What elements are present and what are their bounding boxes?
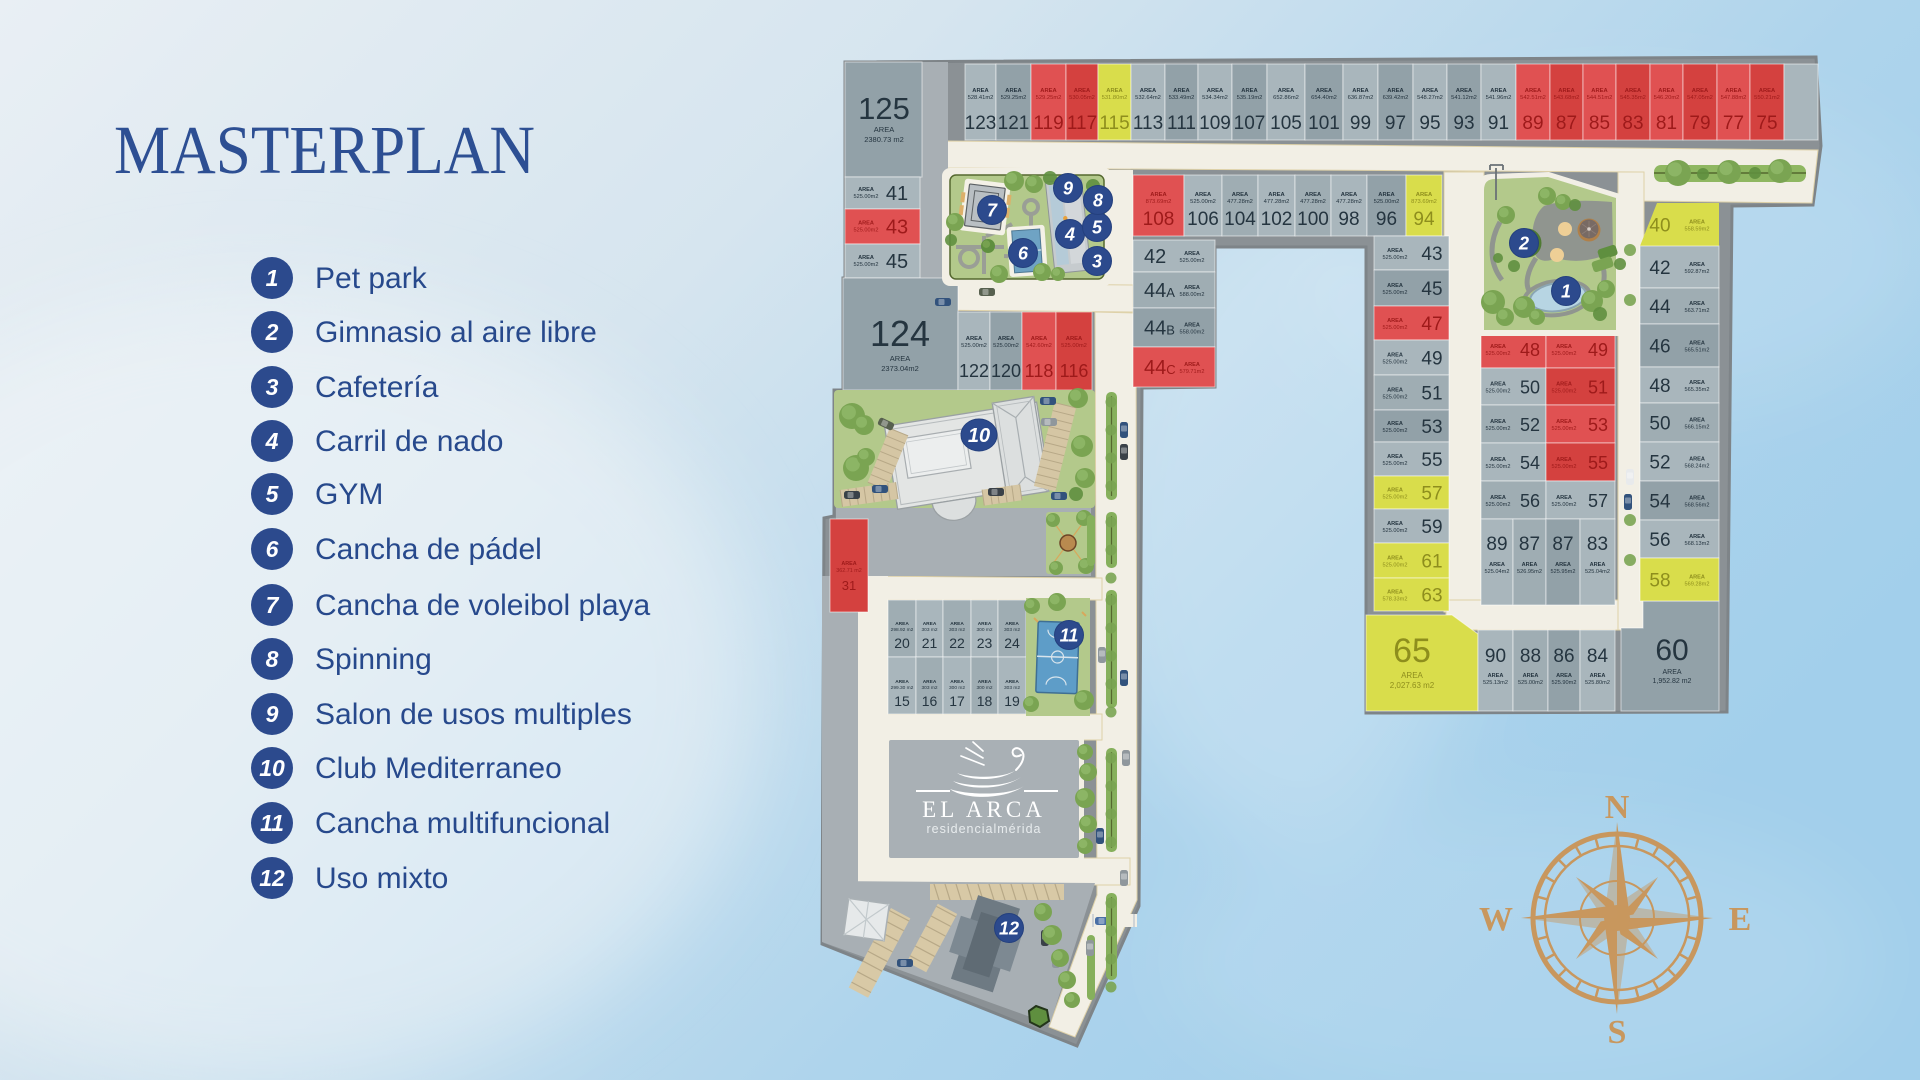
svg-text:300 m2: 300 m2: [949, 685, 965, 691]
svg-text:8: 8: [1093, 191, 1103, 211]
svg-text:AREA: AREA: [1689, 457, 1705, 463]
svg-text:89: 89: [1486, 534, 1507, 555]
svg-text:2: 2: [1518, 234, 1529, 254]
svg-text:AREA: AREA: [1456, 88, 1473, 94]
svg-text:298.92 m2: 298.92 m2: [891, 627, 914, 633]
svg-text:AREA: AREA: [1489, 562, 1505, 568]
svg-text:Cancha de pádel: Cancha de pádel: [315, 533, 542, 566]
svg-text:24: 24: [1004, 635, 1020, 651]
svg-text:AREA: AREA: [1241, 88, 1258, 94]
svg-text:117: 117: [1067, 113, 1097, 134]
svg-text:89: 89: [1522, 113, 1543, 134]
svg-text:AREA: AREA: [1278, 88, 1295, 94]
svg-text:525.00m2: 525.00m2: [1383, 360, 1408, 366]
svg-text:AREA: AREA: [923, 621, 937, 627]
svg-text:11: 11: [260, 810, 284, 836]
svg-text:10: 10: [259, 755, 285, 781]
svg-text:525.00m2: 525.00m2: [1383, 290, 1408, 296]
svg-text:116: 116: [1060, 361, 1089, 381]
svg-text:4: 4: [265, 428, 279, 454]
svg-text:542.51m2: 542.51m2: [1520, 95, 1546, 101]
svg-text:50: 50: [1520, 378, 1540, 398]
svg-text:543.68m2: 543.68m2: [1554, 95, 1580, 101]
svg-text:17: 17: [949, 693, 965, 709]
svg-text:81: 81: [1656, 113, 1677, 134]
svg-text:AREA: AREA: [1490, 457, 1506, 463]
svg-text:AREA: AREA: [1184, 323, 1200, 329]
svg-text:49: 49: [1588, 340, 1608, 360]
svg-text:AREA: AREA: [1387, 590, 1403, 596]
svg-text:AREA: AREA: [874, 125, 894, 134]
svg-text:525.13m2: 525.13m2: [1483, 680, 1508, 686]
svg-text:55: 55: [1588, 453, 1608, 473]
svg-text:3: 3: [266, 374, 279, 400]
svg-text:548.27m2: 548.27m2: [1417, 95, 1443, 101]
svg-text:Cancha multifuncional: Cancha multifuncional: [315, 807, 610, 840]
svg-text:541.96m2: 541.96m2: [1486, 95, 1512, 101]
svg-text:20: 20: [894, 635, 910, 651]
svg-text:AREA: AREA: [1184, 251, 1200, 257]
svg-text:45: 45: [886, 251, 908, 273]
svg-text:AREA: AREA: [1184, 362, 1200, 368]
svg-text:578.33m2: 578.33m2: [1383, 597, 1408, 603]
svg-text:AREA: AREA: [1422, 88, 1439, 94]
svg-text:525.00m2: 525.00m2: [1486, 351, 1511, 357]
svg-text:525.00m2: 525.00m2: [1383, 563, 1408, 569]
svg-text:568.13m2: 568.13m2: [1685, 541, 1710, 547]
svg-text:94: 94: [1413, 209, 1435, 230]
svg-text:303 m2: 303 m2: [922, 627, 938, 633]
svg-text:568.56m2: 568.56m2: [1685, 503, 1710, 509]
svg-text:E: E: [1729, 901, 1752, 938]
svg-text:22: 22: [949, 635, 965, 651]
svg-text:AREA: AREA: [1555, 562, 1571, 568]
svg-text:AREA: AREA: [1387, 488, 1403, 494]
svg-text:529.25m2: 529.25m2: [1001, 95, 1027, 101]
svg-text:636.87m2: 636.87m2: [1348, 95, 1374, 101]
svg-text:79: 79: [1689, 113, 1710, 134]
svg-text:AREA: AREA: [895, 621, 909, 627]
svg-text:525.00m2: 525.00m2: [1552, 426, 1577, 432]
svg-text:2380.73 m2: 2380.73 m2: [864, 135, 904, 144]
svg-text:565.35m2: 565.35m2: [1685, 387, 1710, 393]
svg-text:AREA: AREA: [1625, 88, 1642, 94]
svg-text:588.00m2: 588.00m2: [1180, 292, 1205, 298]
svg-text:AREA: AREA: [1759, 88, 1776, 94]
svg-text:526.95m2: 526.95m2: [1517, 569, 1542, 575]
svg-text:107: 107: [1234, 113, 1266, 134]
svg-text:AREA: AREA: [858, 221, 874, 227]
svg-text:566.15m2: 566.15m2: [1685, 425, 1710, 431]
svg-text:102: 102: [1261, 209, 1293, 230]
svg-text:300 m2: 300 m2: [977, 627, 993, 633]
svg-text:77: 77: [1723, 113, 1744, 134]
svg-text:S: S: [1608, 1014, 1627, 1051]
svg-text:525.00m2: 525.00m2: [1383, 495, 1408, 501]
svg-text:AREA: AREA: [1416, 192, 1433, 198]
svg-text:2,027.63 m2: 2,027.63 m2: [1390, 681, 1435, 690]
svg-text:477.28m2: 477.28m2: [1300, 199, 1326, 205]
svg-text:53: 53: [1421, 417, 1442, 438]
svg-text:48: 48: [1520, 340, 1540, 360]
svg-text:525.00m2: 525.00m2: [1486, 389, 1511, 395]
svg-text:AREA: AREA: [1378, 192, 1395, 198]
svg-text:AREA: AREA: [1525, 88, 1542, 94]
svg-text:MASTERPLAN: MASTERPLAN: [114, 112, 535, 188]
svg-text:AREA: AREA: [890, 354, 910, 363]
svg-text:86: 86: [1553, 646, 1574, 667]
svg-text:303 m2: 303 m2: [1004, 685, 1020, 691]
svg-text:123: 123: [965, 113, 997, 134]
svg-text:45: 45: [1421, 279, 1442, 300]
svg-text:569.28m2: 569.28m2: [1685, 582, 1710, 588]
svg-text:50: 50: [1649, 414, 1670, 435]
svg-text:AREA: AREA: [1387, 88, 1404, 94]
svg-text:55: 55: [1421, 450, 1442, 471]
svg-text:530.05m2: 530.05m2: [1069, 95, 1095, 101]
svg-text:550.21m2: 550.21m2: [1754, 95, 1780, 101]
svg-text:AREA: AREA: [1140, 88, 1157, 94]
svg-text:558.59m2: 558.59m2: [1685, 227, 1710, 233]
svg-text:W: W: [1479, 901, 1513, 938]
svg-text:98: 98: [1338, 209, 1359, 230]
svg-text:AREA: AREA: [1590, 673, 1606, 679]
svg-text:AREA: AREA: [895, 679, 909, 685]
svg-text:AREA: AREA: [1173, 88, 1190, 94]
svg-text:528.41m2: 528.41m2: [968, 95, 994, 101]
svg-text:AREA: AREA: [1005, 88, 1022, 94]
svg-text:533.49m2: 533.49m2: [1169, 95, 1195, 101]
svg-text:535.19m2: 535.19m2: [1237, 95, 1263, 101]
svg-text:83: 83: [1587, 534, 1608, 555]
svg-text:AREA: AREA: [1184, 285, 1200, 291]
svg-text:88: 88: [1520, 646, 1541, 667]
svg-text:15: 15: [894, 693, 910, 709]
svg-text:51: 51: [1588, 378, 1608, 398]
svg-text:121: 121: [998, 113, 1030, 134]
svg-text:57: 57: [1421, 484, 1442, 505]
svg-text:AREA: AREA: [1556, 344, 1572, 350]
svg-text:56: 56: [1649, 530, 1670, 551]
svg-text:525.80m2: 525.80m2: [1585, 680, 1610, 686]
svg-text:303 m2: 303 m2: [1004, 627, 1020, 633]
svg-text:525.00m2: 525.00m2: [1486, 502, 1511, 508]
svg-text:AREA: AREA: [1725, 88, 1742, 94]
svg-text:477.28m2: 477.28m2: [1336, 199, 1362, 205]
svg-text:Uso mixto: Uso mixto: [315, 862, 448, 895]
svg-text:95: 95: [1419, 113, 1440, 134]
svg-text:AREA: AREA: [1387, 388, 1403, 394]
svg-text:1,952.82 m2: 1,952.82 m2: [1653, 678, 1692, 685]
svg-text:Carril de nado: Carril de nado: [315, 425, 503, 458]
svg-text:362.71 m2: 362.71 m2: [836, 568, 861, 574]
svg-text:525.00m2: 525.00m2: [1180, 258, 1205, 264]
svg-text:6: 6: [266, 536, 279, 562]
svg-text:525.04m2: 525.04m2: [1585, 569, 1610, 575]
svg-text:AREA: AREA: [1387, 454, 1403, 460]
svg-text:87: 87: [1556, 113, 1577, 134]
svg-text:104: 104: [1224, 209, 1256, 230]
svg-text:558.00m2: 558.00m2: [1180, 330, 1205, 336]
svg-text:AREA: AREA: [1031, 336, 1048, 342]
svg-text:6: 6: [1018, 244, 1029, 264]
svg-text:122: 122: [959, 361, 989, 381]
svg-text:AREA: AREA: [1522, 562, 1538, 568]
svg-text:7: 7: [266, 592, 280, 618]
svg-text:59: 59: [1421, 517, 1442, 538]
svg-text:97: 97: [1385, 113, 1406, 134]
svg-text:AREA: AREA: [950, 679, 964, 685]
svg-text:AREA: AREA: [1268, 192, 1285, 198]
svg-text:AREA: AREA: [1556, 673, 1572, 679]
svg-text:52: 52: [1520, 415, 1540, 435]
svg-text:AREA: AREA: [966, 336, 983, 342]
svg-text:31: 31: [842, 578, 856, 593]
svg-text:525.00m2: 525.00m2: [1383, 325, 1408, 331]
svg-text:AREA: AREA: [998, 336, 1015, 342]
svg-text:48: 48: [1649, 376, 1670, 397]
svg-text:44: 44: [1649, 297, 1671, 318]
svg-text:105: 105: [1270, 113, 1302, 134]
svg-text:47: 47: [1421, 314, 1442, 335]
svg-text:87: 87: [1519, 534, 1540, 555]
svg-text:525.00m2: 525.00m2: [1518, 680, 1543, 686]
svg-text:299.30 m2: 299.30 m2: [891, 685, 914, 691]
svg-text:AREA: AREA: [1689, 262, 1705, 268]
svg-text:AREA: AREA: [1387, 353, 1403, 359]
svg-text:AREA: AREA: [1305, 192, 1322, 198]
svg-text:563.71m2: 563.71m2: [1685, 308, 1710, 314]
svg-text:525.00m2: 525.00m2: [1374, 199, 1400, 205]
svg-text:AREA: AREA: [1387, 421, 1403, 427]
svg-text:101: 101: [1308, 113, 1340, 134]
svg-text:Pet park: Pet park: [315, 262, 428, 295]
svg-text:42: 42: [1144, 246, 1166, 268]
svg-text:AREA: AREA: [1556, 457, 1572, 463]
svg-text:43: 43: [886, 217, 908, 239]
svg-text:AREA: AREA: [841, 561, 856, 567]
svg-text:AREA: AREA: [1490, 495, 1506, 501]
svg-text:AREA: AREA: [1106, 88, 1123, 94]
svg-text:525.00m2: 525.00m2: [1061, 343, 1087, 349]
svg-text:525.00m2: 525.00m2: [1486, 464, 1511, 470]
svg-text:124: 124: [870, 313, 930, 354]
svg-text:60: 60: [1655, 634, 1688, 667]
svg-text:AREA: AREA: [1689, 418, 1705, 424]
svg-text:565.51m2: 565.51m2: [1685, 348, 1710, 354]
svg-text:639.42m2: 639.42m2: [1383, 95, 1409, 101]
svg-text:525.00m2: 525.00m2: [1552, 351, 1577, 357]
svg-text:125: 125: [858, 91, 910, 126]
svg-text:AREA: AREA: [1556, 382, 1572, 388]
svg-text:10: 10: [968, 425, 990, 447]
svg-text:477.28m2: 477.28m2: [1227, 199, 1253, 205]
svg-text:75: 75: [1756, 113, 1777, 134]
svg-text:5: 5: [1092, 218, 1103, 238]
svg-text:AREA: AREA: [1556, 419, 1572, 425]
svg-text:8: 8: [266, 646, 279, 672]
svg-text:AREA: AREA: [1558, 88, 1575, 94]
svg-text:873.69m2: 873.69m2: [1411, 199, 1437, 205]
svg-text:AREA: AREA: [1692, 88, 1709, 94]
svg-text:873.69m2: 873.69m2: [1146, 199, 1172, 205]
svg-text:AREA: AREA: [858, 187, 874, 193]
svg-text:531.80m2: 531.80m2: [1102, 95, 1128, 101]
svg-text:AREA: AREA: [858, 255, 874, 261]
svg-text:1: 1: [266, 265, 279, 291]
svg-text:87: 87: [1552, 534, 1573, 555]
svg-text:652.86m2: 652.86m2: [1273, 95, 1299, 101]
svg-text:525.00m2: 525.00m2: [1383, 528, 1408, 534]
svg-text:547.88m2: 547.88m2: [1721, 95, 1747, 101]
svg-text:AREA: AREA: [1005, 679, 1019, 685]
svg-text:529.25m2: 529.25m2: [1036, 95, 1062, 101]
svg-text:AREA: AREA: [1590, 562, 1606, 568]
svg-text:Club Mediterraneo: Club Mediterraneo: [315, 752, 562, 785]
svg-text:AREA: AREA: [1195, 192, 1212, 198]
svg-text:AREA: AREA: [1689, 575, 1705, 581]
svg-text:9: 9: [266, 701, 279, 727]
svg-text:AREA: AREA: [1591, 88, 1608, 94]
svg-text:303 m2: 303 m2: [922, 685, 938, 691]
svg-text:AREA: AREA: [1556, 495, 1572, 501]
svg-text:AREA: AREA: [972, 88, 989, 94]
svg-text:525.00m2: 525.00m2: [1552, 464, 1577, 470]
svg-text:AREA: AREA: [1662, 669, 1681, 676]
svg-text:AREA: AREA: [1232, 192, 1249, 198]
svg-text:54: 54: [1649, 492, 1671, 513]
svg-text:AREA: AREA: [1689, 496, 1705, 502]
svg-text:AREA: AREA: [923, 679, 937, 685]
svg-text:525.90m2: 525.90m2: [1552, 680, 1577, 686]
svg-text:AREA: AREA: [1689, 220, 1705, 226]
svg-text:49: 49: [1421, 349, 1442, 370]
svg-text:113: 113: [1133, 113, 1163, 134]
svg-text:AREA: AREA: [1490, 88, 1507, 94]
svg-text:93: 93: [1453, 113, 1474, 134]
svg-text:111: 111: [1167, 113, 1196, 134]
svg-text:118: 118: [1025, 361, 1054, 381]
svg-text:99: 99: [1350, 113, 1371, 134]
svg-text:4: 4: [1064, 225, 1075, 245]
svg-text:AREA: AREA: [1490, 344, 1506, 350]
svg-text:AREA: AREA: [1040, 88, 1057, 94]
svg-text:542.60m2: 542.60m2: [1026, 343, 1052, 349]
svg-text:525.00m2: 525.00m2: [1486, 426, 1511, 432]
svg-text:547.05m2: 547.05m2: [1687, 95, 1713, 101]
svg-text:115: 115: [1099, 113, 1129, 134]
svg-text:534.34m2: 534.34m2: [1202, 95, 1228, 101]
svg-text:46: 46: [1649, 337, 1670, 358]
svg-text:541.12m2: 541.12m2: [1451, 95, 1477, 101]
svg-text:477.28m2: 477.28m2: [1264, 199, 1290, 205]
svg-text:AREA: AREA: [1150, 192, 1167, 198]
svg-text:108: 108: [1143, 209, 1175, 230]
svg-text:18: 18: [977, 693, 993, 709]
svg-text:91: 91: [1488, 113, 1509, 134]
svg-text:106: 106: [1187, 209, 1219, 230]
svg-text:1: 1: [1561, 282, 1571, 302]
svg-text:AREA: AREA: [1005, 621, 1019, 627]
svg-text:AREA: AREA: [1490, 419, 1506, 425]
svg-text:119: 119: [1033, 113, 1063, 134]
svg-text:56: 56: [1520, 491, 1540, 511]
svg-text:51: 51: [1421, 384, 1442, 405]
svg-text:53: 53: [1588, 415, 1608, 435]
svg-text:63: 63: [1421, 586, 1442, 607]
svg-text:AREA: AREA: [1387, 521, 1403, 527]
svg-text:83: 83: [1622, 113, 1643, 134]
svg-text:544.51m2: 544.51m2: [1587, 95, 1613, 101]
svg-text:19: 19: [1004, 693, 1020, 709]
svg-text:109: 109: [1199, 113, 1231, 134]
svg-text:96: 96: [1376, 209, 1397, 230]
svg-text:568.24m2: 568.24m2: [1685, 464, 1710, 470]
svg-text:AREA: AREA: [978, 621, 992, 627]
svg-text:52: 52: [1649, 453, 1670, 474]
svg-text:21: 21: [922, 635, 938, 651]
svg-text:AREA: AREA: [1689, 301, 1705, 307]
svg-text:AREA: AREA: [1387, 318, 1403, 324]
svg-text:residencialmérida: residencialmérida: [927, 822, 1042, 836]
svg-text:43: 43: [1421, 244, 1442, 265]
svg-text:300 m2: 300 m2: [977, 685, 993, 691]
svg-text:525.00m2: 525.00m2: [1552, 502, 1577, 508]
svg-text:525.00m2: 525.00m2: [1383, 428, 1408, 434]
svg-text:5: 5: [266, 481, 280, 507]
svg-text:525.00m2: 525.00m2: [854, 262, 879, 268]
svg-text:41: 41: [886, 183, 908, 205]
svg-text:546.20m2: 546.20m2: [1654, 95, 1680, 101]
svg-text:12: 12: [999, 919, 1019, 939]
svg-text:9: 9: [1063, 179, 1073, 199]
svg-text:Salon de usos multiples: Salon de usos multiples: [315, 698, 632, 731]
svg-text:525.00m2: 525.00m2: [1190, 199, 1216, 205]
svg-text:40: 40: [1649, 216, 1670, 237]
svg-text:12: 12: [259, 865, 285, 891]
svg-text:AREA: AREA: [950, 621, 964, 627]
svg-text:AREA: AREA: [1316, 88, 1333, 94]
svg-text:120: 120: [991, 361, 1021, 381]
svg-text:Cancha de voleibol playa: Cancha de voleibol playa: [315, 589, 651, 622]
svg-text:525.00m2: 525.00m2: [854, 227, 879, 233]
svg-text:525.95m2: 525.95m2: [1551, 569, 1576, 575]
svg-text:AREA: AREA: [1341, 192, 1358, 198]
svg-text:525.00m2: 525.00m2: [1552, 389, 1577, 395]
svg-text:AREA: AREA: [1207, 88, 1224, 94]
svg-text:AREA: AREA: [1066, 336, 1083, 342]
svg-text:AREA: AREA: [1689, 380, 1705, 386]
svg-text:3: 3: [1092, 252, 1102, 272]
svg-text:2373.04m2: 2373.04m2: [881, 364, 919, 373]
svg-text:AREA: AREA: [1387, 283, 1403, 289]
svg-text:AREA: AREA: [1523, 673, 1539, 679]
svg-text:AREA: AREA: [1490, 382, 1506, 388]
svg-text:525.00m2: 525.00m2: [993, 343, 1019, 349]
svg-text:AREA: AREA: [978, 679, 992, 685]
svg-text:N: N: [1605, 789, 1630, 826]
svg-text:61: 61: [1421, 552, 1442, 573]
svg-text:AREA: AREA: [1658, 88, 1675, 94]
svg-text:2: 2: [265, 319, 279, 345]
svg-text:532.64m2: 532.64m2: [1135, 95, 1161, 101]
svg-text:AREA: AREA: [1689, 534, 1705, 540]
svg-text:90: 90: [1485, 646, 1506, 667]
svg-text:57: 57: [1588, 491, 1608, 511]
svg-text:525.00m2: 525.00m2: [1383, 395, 1408, 401]
svg-text:65: 65: [1393, 632, 1431, 670]
svg-text:58: 58: [1649, 571, 1670, 592]
